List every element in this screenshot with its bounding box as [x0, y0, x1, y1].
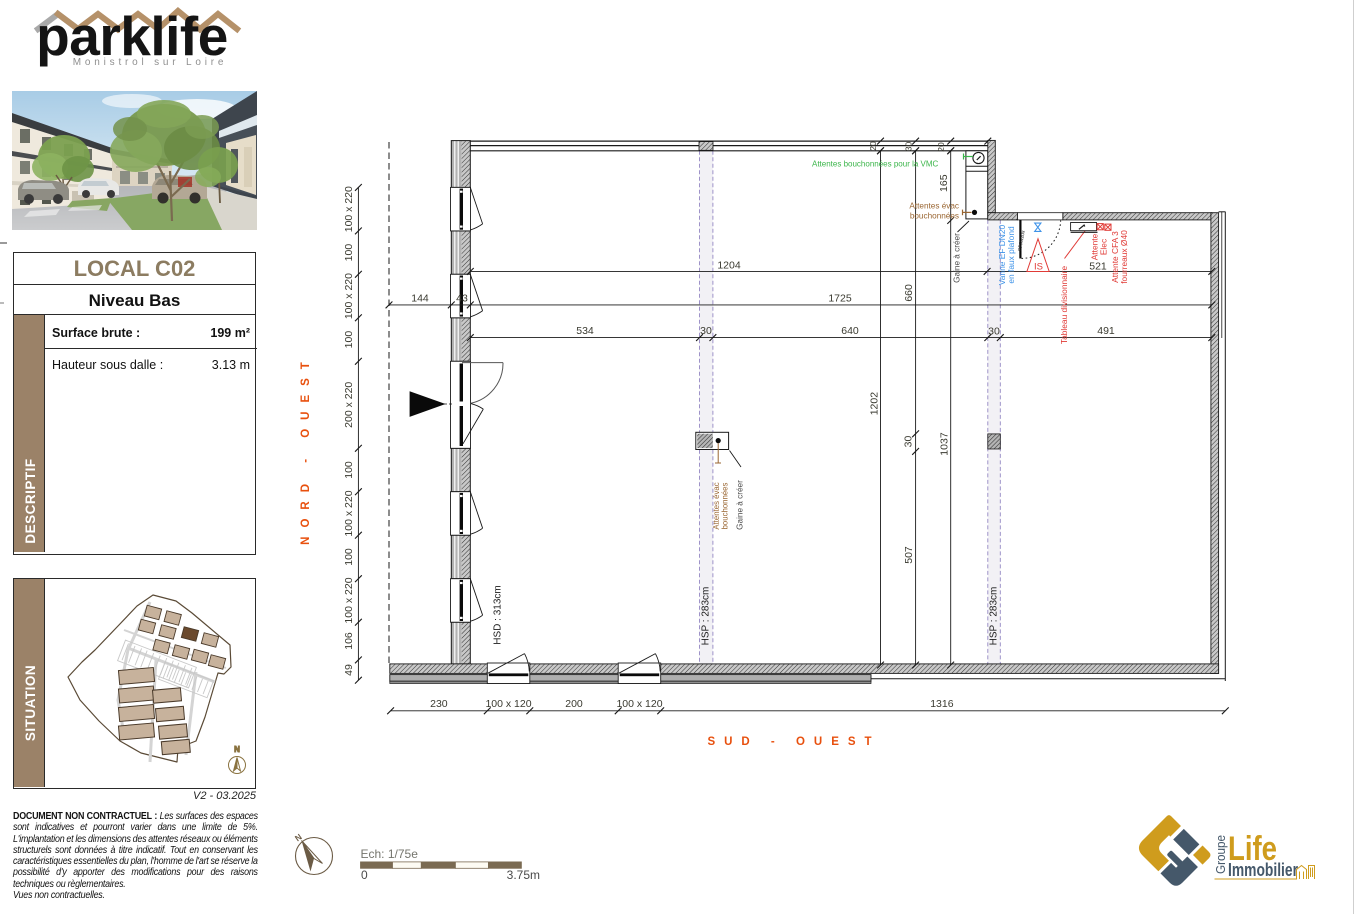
svg-text:100 x 220: 100 x 220 — [343, 577, 355, 623]
svg-text:30: 30 — [903, 436, 915, 448]
svg-text:230: 230 — [430, 698, 448, 710]
svg-text:200 x 220: 200 x 220 — [343, 382, 355, 428]
svg-text:660: 660 — [903, 284, 915, 302]
svg-text:106: 106 — [343, 632, 355, 650]
svg-text:144: 144 — [411, 292, 429, 304]
svg-text:100 x 120: 100 x 120 — [616, 698, 662, 710]
svg-text:en faux plafond: en faux plafond — [1006, 226, 1016, 284]
svg-text:491: 491 — [1097, 325, 1115, 337]
svg-text:1037: 1037 — [938, 432, 950, 456]
svg-text:HSP : 283cm: HSP : 283cm — [701, 587, 712, 646]
svg-text:3.75m: 3.75m — [507, 868, 540, 882]
svg-text:Attentes évac: Attentes évac — [909, 202, 959, 211]
svg-text:bouchonnées: bouchonnées — [721, 482, 730, 529]
svg-text:100: 100 — [343, 331, 355, 349]
svg-text:Ech: 1/75e: Ech: 1/75e — [361, 847, 419, 861]
svg-text:Attentes bouchonnées pour la V: Attentes bouchonnées pour la VMC — [812, 160, 939, 169]
svg-text:PPRv20x: PPRv20x — [1017, 230, 1027, 252]
svg-text:30: 30 — [988, 326, 1000, 338]
svg-text:Gaine à créer: Gaine à créer — [736, 480, 745, 530]
svg-text:bouchonnées: bouchonnées — [910, 212, 959, 221]
svg-text:521: 521 — [1089, 260, 1107, 272]
svg-text:534: 534 — [576, 325, 594, 337]
svg-text:Immobilier: Immobilier — [1228, 859, 1298, 880]
svg-text:Tableau divisionnaire: Tableau divisionnaire — [1059, 266, 1069, 345]
svg-text:1725: 1725 — [828, 292, 852, 304]
svg-text:Groupe: Groupe — [1213, 835, 1228, 874]
svg-text:1204: 1204 — [717, 259, 741, 271]
svg-text:100 x 220: 100 x 220 — [343, 490, 355, 536]
svg-text:N: N — [234, 745, 240, 754]
svg-text:HSD : 313cm: HSD : 313cm — [493, 585, 504, 644]
svg-text:Elec: Elec — [1099, 239, 1109, 255]
svg-text:1202: 1202 — [868, 392, 880, 416]
svg-text:100: 100 — [343, 548, 355, 566]
svg-text:IS: IS — [1034, 262, 1043, 273]
svg-text:165: 165 — [938, 174, 950, 192]
svg-text:fourreaux Ø40: fourreaux Ø40 — [1119, 230, 1129, 284]
svg-text:30: 30 — [904, 142, 914, 152]
svg-text:1316: 1316 — [930, 698, 954, 710]
svg-text:0: 0 — [361, 868, 368, 882]
svg-text:20: 20 — [936, 142, 946, 152]
svg-text:Gaine à créer: Gaine à créer — [953, 233, 962, 283]
svg-text:20: 20 — [868, 141, 878, 151]
svg-text:SUD - OUEST: SUD - OUEST — [707, 736, 880, 748]
svg-text:100: 100 — [343, 461, 355, 479]
svg-text:100 x 220: 100 x 220 — [343, 273, 355, 319]
svg-text:NORD - OUEST: NORD - OUEST — [300, 353, 312, 545]
svg-text:30: 30 — [700, 325, 712, 337]
svg-text:HSP : 283cm: HSP : 283cm — [989, 587, 1000, 646]
svg-text:100 x 120: 100 x 120 — [485, 698, 531, 710]
svg-text:49: 49 — [343, 664, 355, 676]
svg-text:507: 507 — [903, 546, 915, 564]
svg-text:100: 100 — [343, 244, 355, 262]
svg-text:100 x 220: 100 x 220 — [343, 186, 355, 232]
svg-text:43: 43 — [456, 292, 468, 304]
svg-text:640: 640 — [841, 325, 859, 337]
svg-text:200: 200 — [565, 698, 583, 710]
